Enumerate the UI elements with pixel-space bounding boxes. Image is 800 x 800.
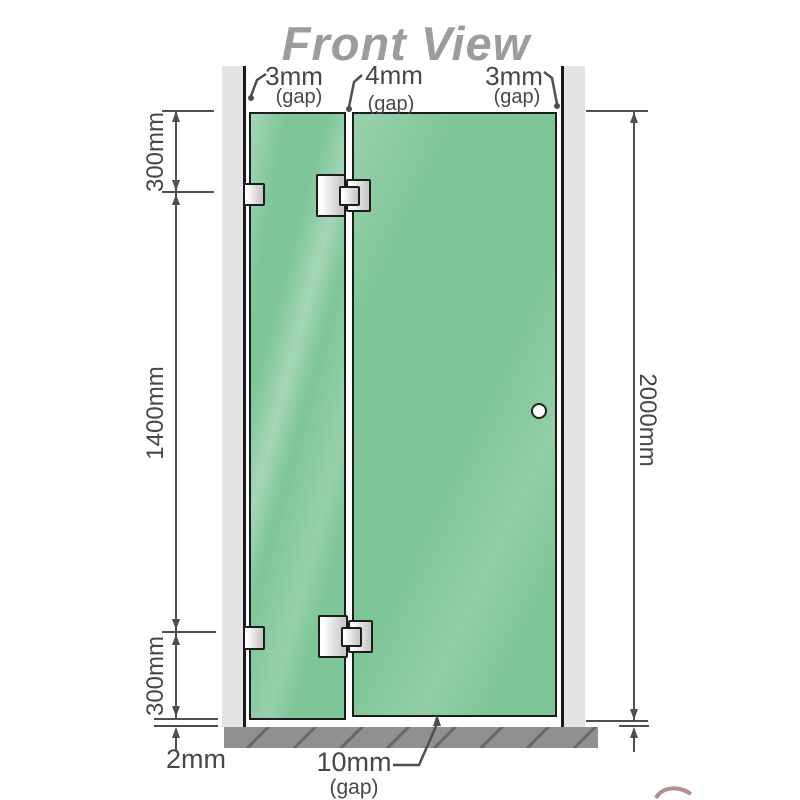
wall-bracket-bottom	[243, 626, 265, 650]
left-wall	[222, 66, 243, 727]
extension-line	[162, 631, 216, 633]
dim-line-1400	[175, 193, 177, 632]
dim-label-300mm-top: 300mm	[142, 107, 166, 197]
dim-label-300mm-bottom: 300mm	[142, 631, 166, 721]
gap-label-top-middle: 4mm	[358, 60, 430, 91]
wall-bracket-top	[243, 183, 265, 206]
leader-dot	[554, 103, 560, 109]
arrowhead	[630, 727, 638, 738]
extension-line	[162, 191, 214, 193]
gap-qualifier-top-left: (gap)	[263, 86, 335, 109]
arrowhead	[630, 112, 638, 123]
arrowhead	[172, 634, 180, 645]
door-handle	[531, 403, 547, 419]
gap-qualifier-top-middle: (gap)	[355, 93, 427, 116]
right-wall	[564, 66, 585, 727]
arrowhead	[172, 111, 180, 122]
arrowhead	[172, 194, 180, 205]
hinge-bottom-knuckle	[341, 627, 362, 647]
arrowhead	[172, 727, 180, 738]
extension-line	[154, 725, 218, 727]
right-wall-edge-line	[561, 66, 564, 727]
arrowhead	[630, 709, 638, 720]
gap-qualifier-top-right: (gap)	[481, 86, 553, 109]
extension-line	[586, 720, 648, 722]
extension-line	[162, 110, 214, 112]
dim-label-2mm: 2mm	[158, 744, 234, 775]
hinge-top-knuckle	[339, 186, 360, 206]
arrowhead	[172, 180, 180, 191]
gap-qualifier-bottom: (gap)	[312, 776, 396, 800]
watermark-mark	[656, 788, 691, 798]
arrowhead	[172, 706, 180, 717]
gap-label-bottom: 10mm	[312, 747, 396, 778]
leader-dot	[248, 95, 254, 101]
floor-base	[224, 727, 598, 748]
dim-label-1400mm: 1400mm	[142, 358, 166, 468]
arrowhead	[172, 619, 180, 630]
extension-line	[586, 110, 648, 112]
diagram-canvas: Front View 30	[0, 0, 800, 800]
dim-label-2000mm: 2000mm	[635, 370, 661, 470]
door-glass-panel	[352, 112, 557, 717]
